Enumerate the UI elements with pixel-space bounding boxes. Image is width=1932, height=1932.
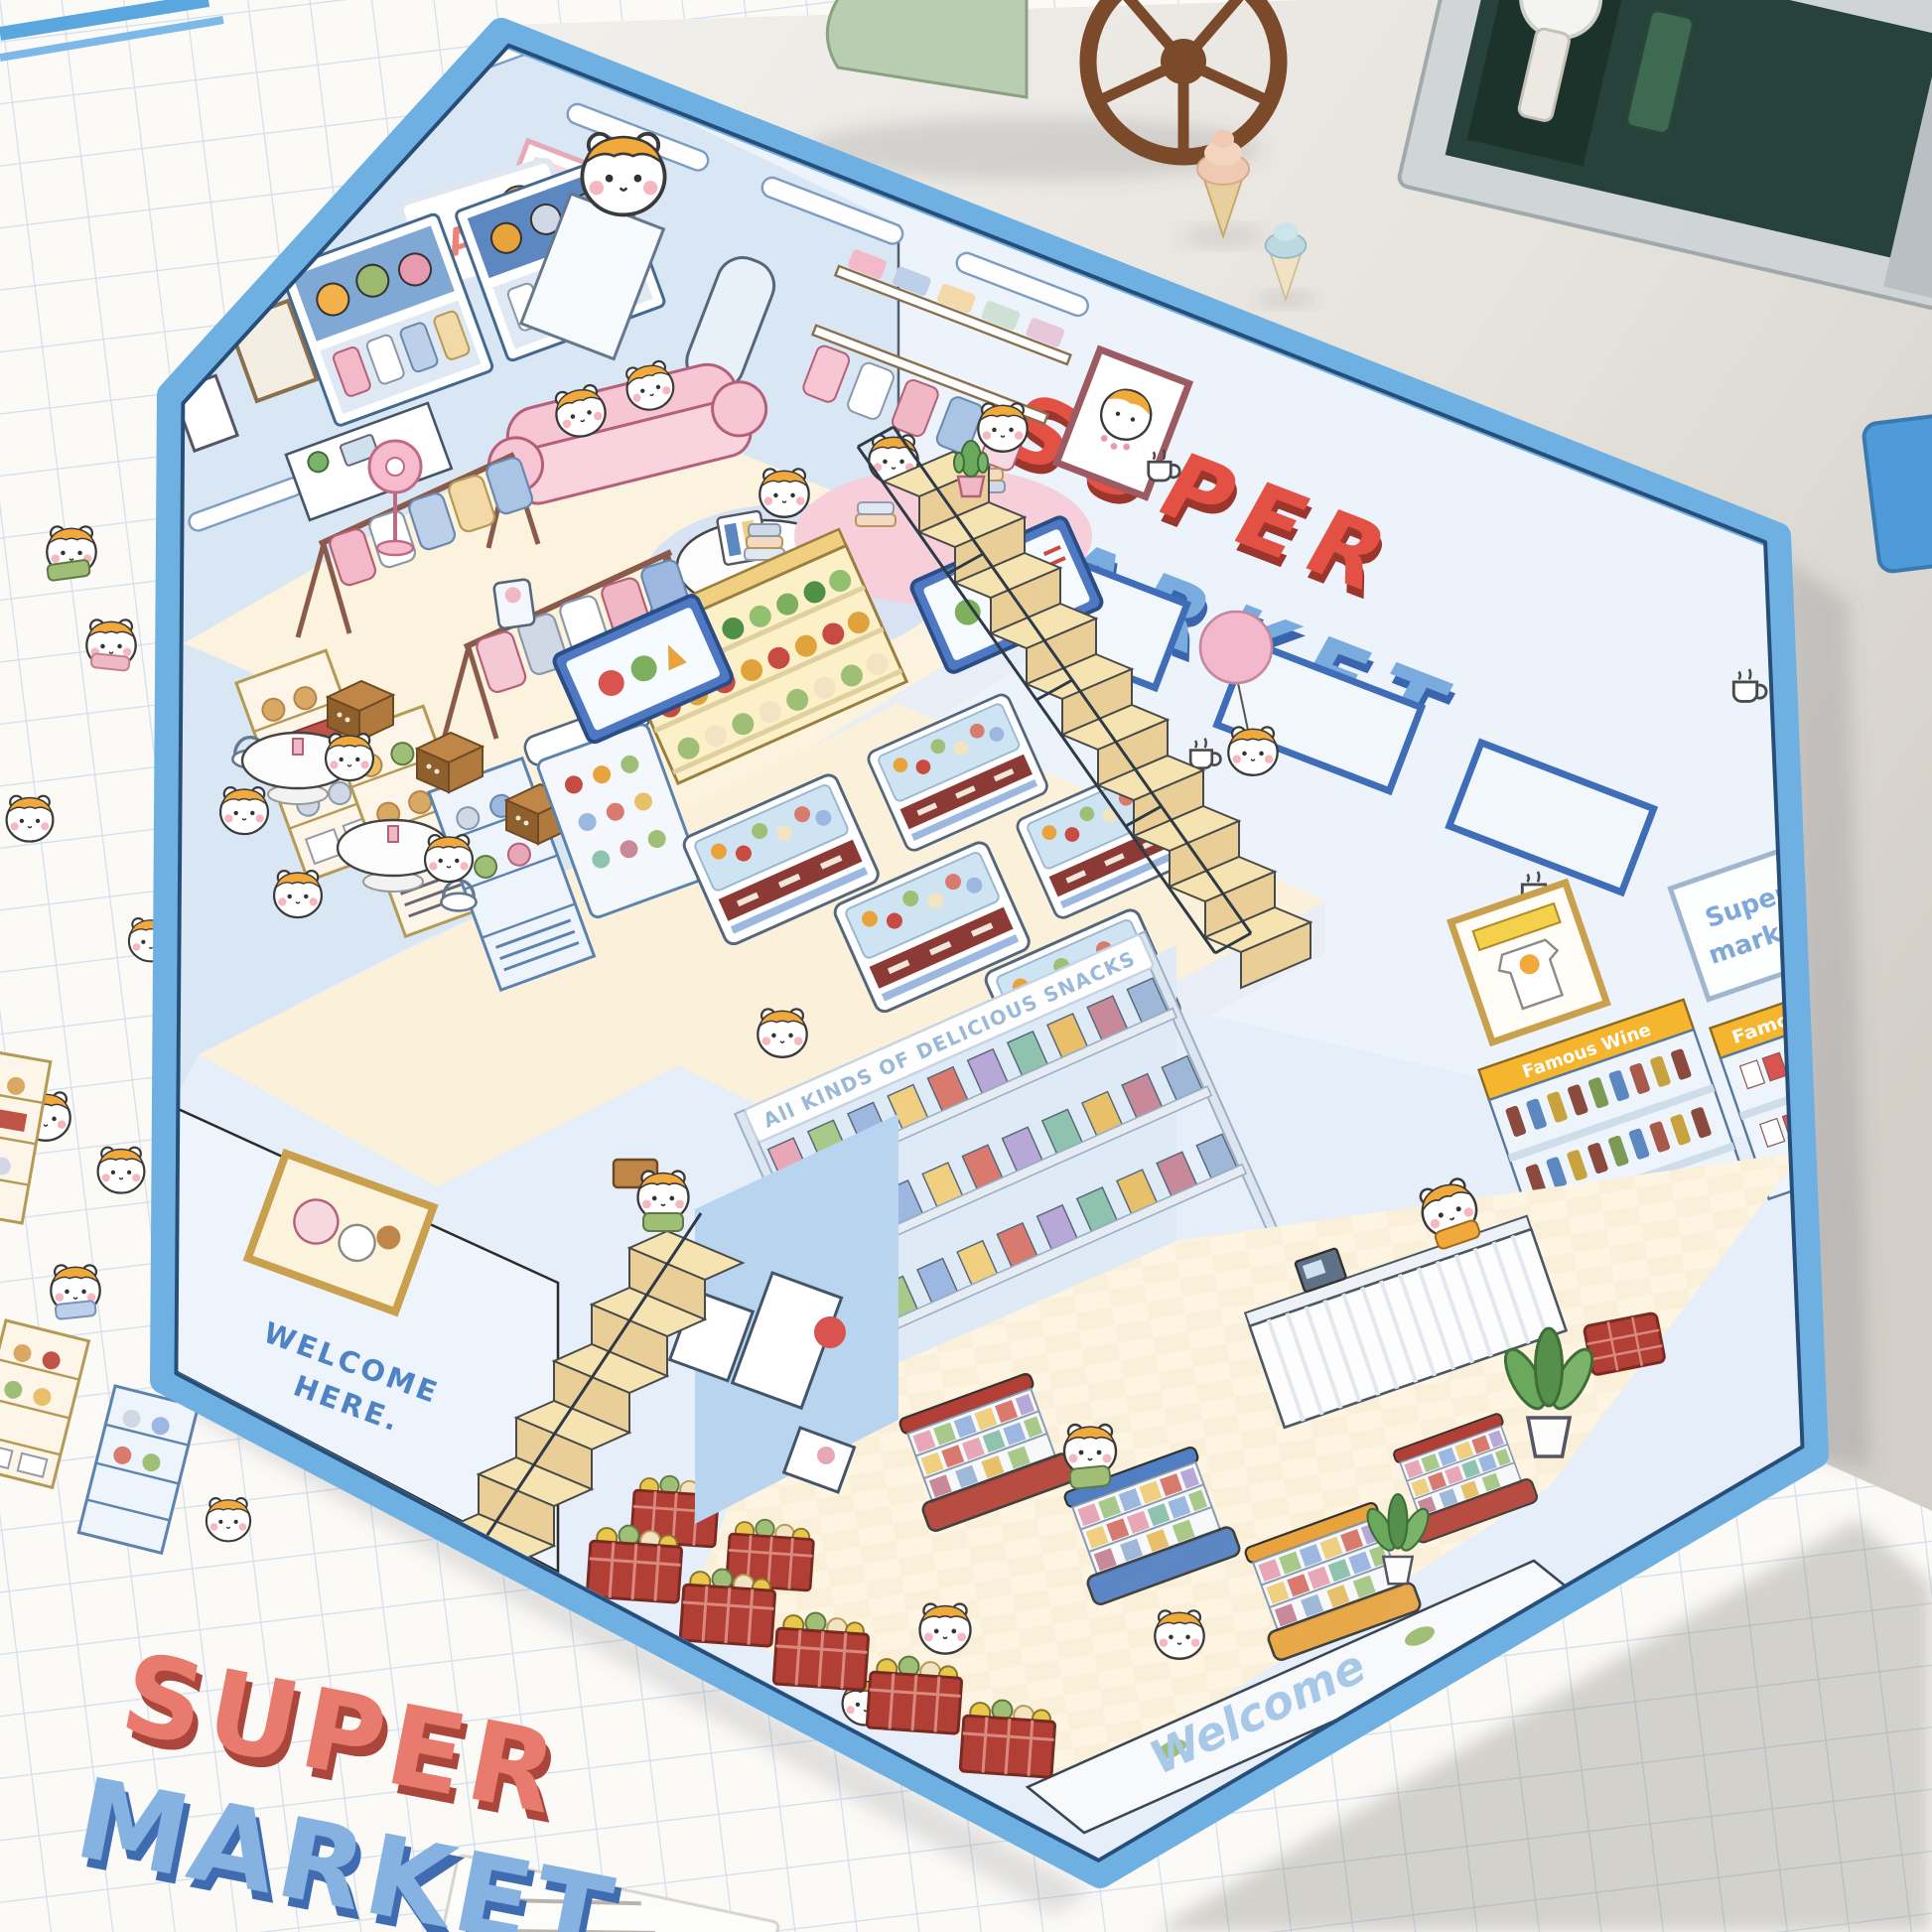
trash-bin [493,579,535,629]
freezer-hamster [758,1009,806,1056]
photo-of-supermarket-sticker-scene: SUPER SUPER MARKET MARKET SUPER SUPER MA… [0,0,1932,1932]
scene-canvas: SUPER SUPER MARKET MARKET SUPER SUPER MA… [0,0,1932,1932]
